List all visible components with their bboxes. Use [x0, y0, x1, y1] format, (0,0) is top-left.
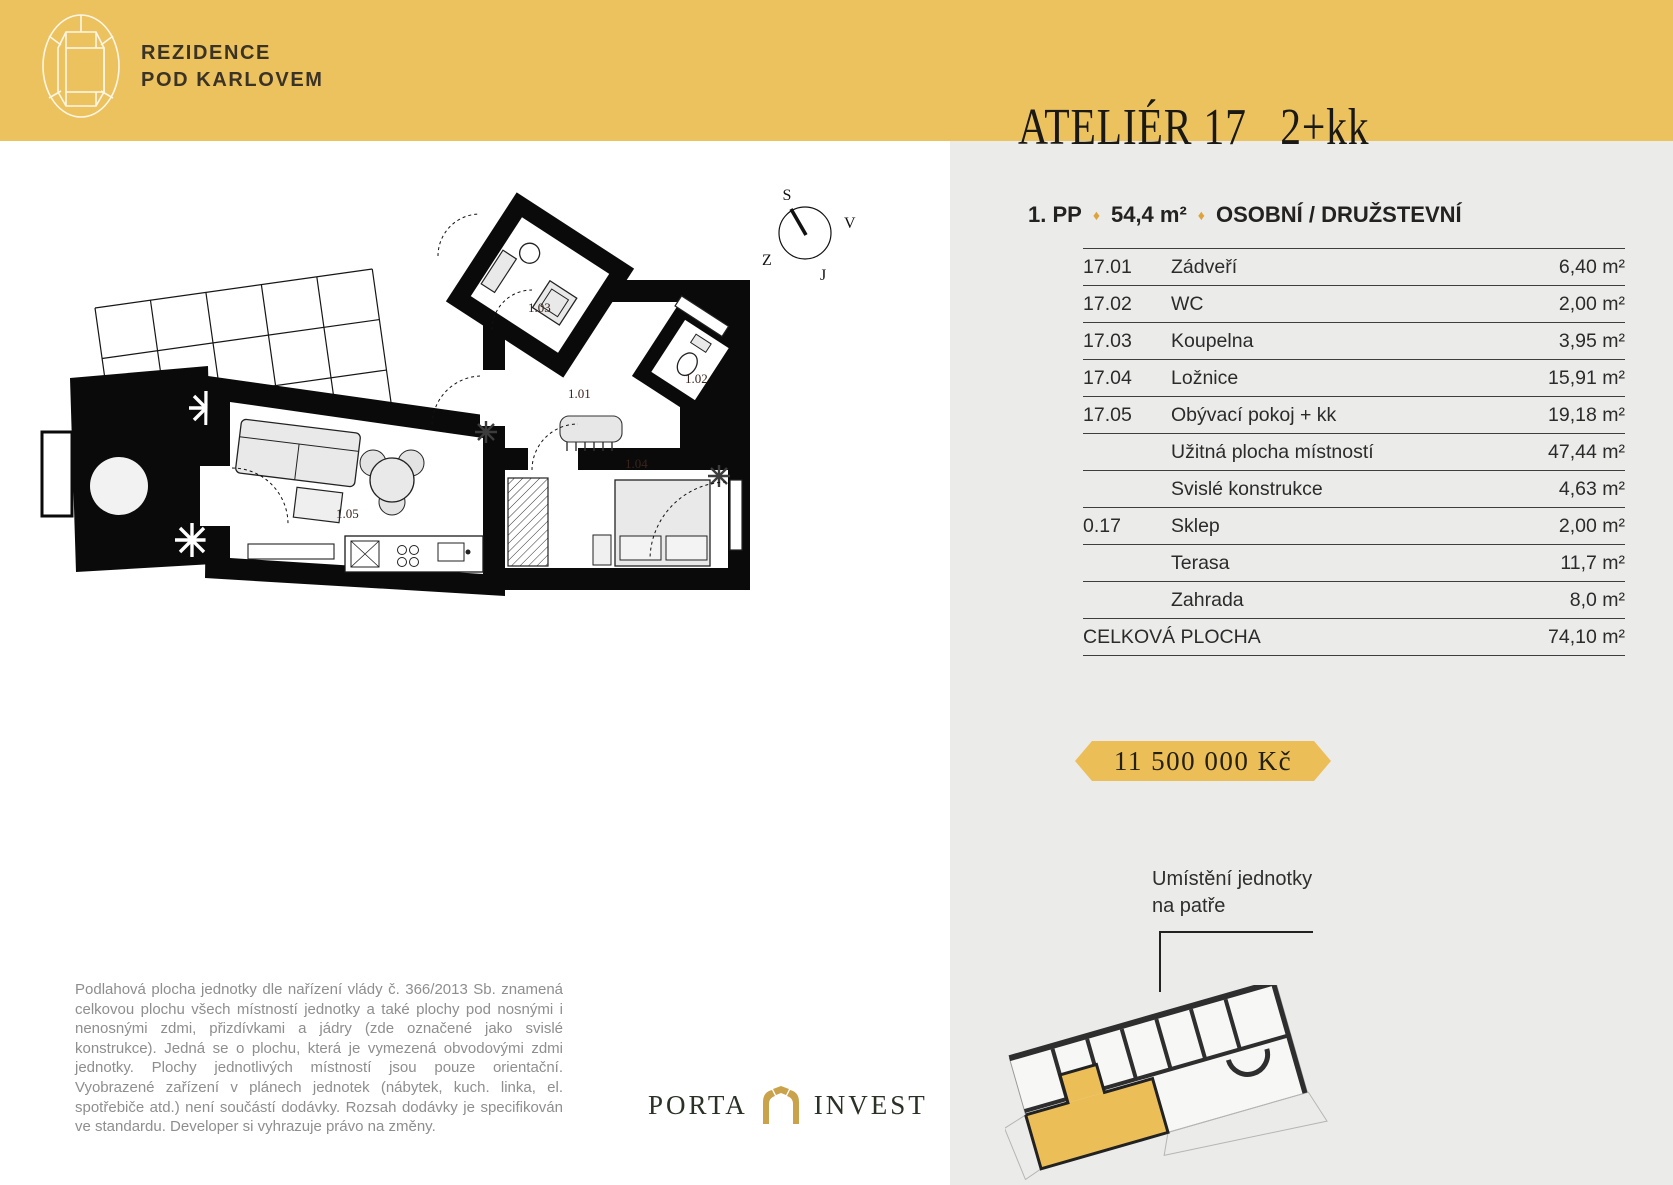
room-area-table: 17.01 Zádveří 6,40 m² 17.02 WC 2,00 m² 1… — [1083, 248, 1625, 656]
unit-floor: 1. PP — [1028, 202, 1082, 228]
room-name: Ložnice — [1171, 367, 1548, 390]
room-code: 17.02 — [1083, 293, 1171, 316]
unit-subtitle: 1. PP ♦ 54,4 m² ♦ OSOBNÍ / DRUŽSTEVNÍ — [1028, 202, 1462, 228]
svg-text:J: J — [820, 267, 826, 284]
room-name: Koupelna — [1171, 330, 1559, 353]
terrace-table — [90, 457, 148, 515]
table-row: 17.03 Koupelna 3,95 m² — [1083, 323, 1625, 360]
total-value: 74,10 m² — [1548, 626, 1625, 649]
unit-ownership: OSOBNÍ / DRUŽSTEVNÍ — [1216, 202, 1462, 228]
room-name: Zádveří — [1171, 256, 1559, 279]
room-name: Zahrada — [1171, 589, 1570, 612]
room-area-value: 47,44 m² — [1548, 441, 1625, 464]
room-code: 0.17 — [1083, 515, 1171, 538]
room-rows: 17.01 Zádveří 6,40 m² 17.02 WC 2,00 m² 1… — [1083, 249, 1625, 619]
room-code: 17.05 — [1083, 404, 1171, 427]
unit-name: ATELIÉR 17 — [1018, 98, 1247, 157]
unit-layout: 2+kk — [1280, 98, 1369, 157]
room-area-value: 8,0 m² — [1570, 589, 1625, 612]
table-row: Zahrada 8,0 m² — [1083, 582, 1625, 619]
brand-name: REZIDENCE POD KARLOVEM — [141, 40, 324, 94]
bracket-line-vertical — [1159, 931, 1161, 992]
floor-location-plan — [1005, 985, 1335, 1180]
room-area-value: 19,18 m² — [1548, 404, 1625, 427]
invest-text: INVEST — [814, 1090, 928, 1121]
french-window — [730, 480, 742, 550]
table-row: 17.04 Ložnice 15,91 m² — [1083, 360, 1625, 397]
table-row: 17.05 Obývací pokoj + kk 19,18 m² — [1083, 397, 1625, 434]
room-name: Užitná plocha místností — [1171, 441, 1548, 464]
table-row: Užitná plocha místností 47,44 m² — [1083, 434, 1625, 471]
total-label: CELKOVÁ PLOCHA — [1083, 626, 1548, 649]
room-name: Svislé konstrukce — [1171, 478, 1559, 501]
page: REZIDENCE POD KARLOVEM ATELIÉR 17 2+kk 1… — [0, 0, 1673, 1185]
room-code: 17.03 — [1083, 330, 1171, 353]
bracket-line-horizontal — [1159, 931, 1313, 933]
room-area-value: 2,00 m² — [1559, 515, 1625, 538]
room-area-value: 2,00 m² — [1559, 293, 1625, 316]
diamond-icon: ♦ — [1198, 208, 1205, 222]
plant-icon — [475, 421, 497, 443]
room-label-105: 1.05 — [336, 506, 359, 521]
plant-icon — [175, 523, 209, 557]
tv-cabinet — [248, 544, 334, 559]
room-code: 17.04 — [1083, 367, 1171, 390]
room-label-103: 1.03 — [528, 300, 551, 315]
room-label-102: 1.02 — [685, 371, 708, 386]
svg-text:V: V — [844, 215, 856, 232]
unit-floor-plan: S V Z J — [40, 180, 870, 600]
unit-area: 54,4 m² — [1111, 202, 1187, 228]
kitchen — [345, 536, 483, 572]
porta-text: PORTA — [648, 1090, 748, 1121]
room-name: Obývací pokoj + kk — [1171, 404, 1548, 427]
room-label-101: 1.01 — [568, 386, 591, 401]
arch-icon — [760, 1086, 802, 1124]
svg-text:S: S — [783, 187, 792, 204]
room-area-value: 3,95 m² — [1559, 330, 1625, 353]
brand-line2: POD KARLOVEM — [141, 67, 324, 94]
room-name: WC — [1171, 293, 1559, 316]
table-row: 0.17 Sklep 2,00 m² — [1083, 508, 1625, 545]
table-row: Svislé konstrukce 4,63 m² — [1083, 471, 1625, 508]
price-badge: 11 500 000 Kč — [1075, 741, 1331, 781]
brand-line1: REZIDENCE — [141, 40, 324, 67]
svg-text:Z: Z — [762, 252, 772, 269]
diamond-icon: ♦ — [1093, 208, 1100, 222]
compass-icon: S V Z J — [762, 187, 856, 284]
room-area-value: 11,7 m² — [1560, 552, 1625, 575]
table-row: Terasa 11,7 m² — [1083, 545, 1625, 582]
room-name: Sklep — [1171, 515, 1559, 538]
gem-logo-icon — [36, 6, 128, 122]
room-area-value: 4,63 m² — [1559, 478, 1625, 501]
placement-line2: na patře — [1152, 893, 1312, 920]
placement-label: Umístění jednotky na patře — [1152, 866, 1312, 920]
unit-title: ATELIÉR 17 2+kk — [1018, 98, 1369, 157]
table-row: 17.01 Zádveří 6,40 m² — [1083, 249, 1625, 286]
price-value: 11 500 000 Kč — [1114, 746, 1292, 777]
table-total-row: CELKOVÁ PLOCHA 74,10 m² — [1083, 619, 1625, 656]
wardrobe — [508, 478, 548, 566]
room-label-104: 1.04 — [625, 456, 648, 471]
room-code: 17.01 — [1083, 256, 1171, 279]
disclaimer-text: Podlahová plocha jednotky dle nařízení v… — [75, 980, 563, 1137]
table-row: 17.02 WC 2,00 m² — [1083, 286, 1625, 323]
placement-line1: Umístění jednotky — [1152, 866, 1312, 893]
room-area-value: 6,40 m² — [1559, 256, 1625, 279]
porta-invest-logo: PORTA INVEST — [648, 1086, 928, 1124]
room-name: Terasa — [1171, 552, 1560, 575]
room-area-value: 15,91 m² — [1548, 367, 1625, 390]
